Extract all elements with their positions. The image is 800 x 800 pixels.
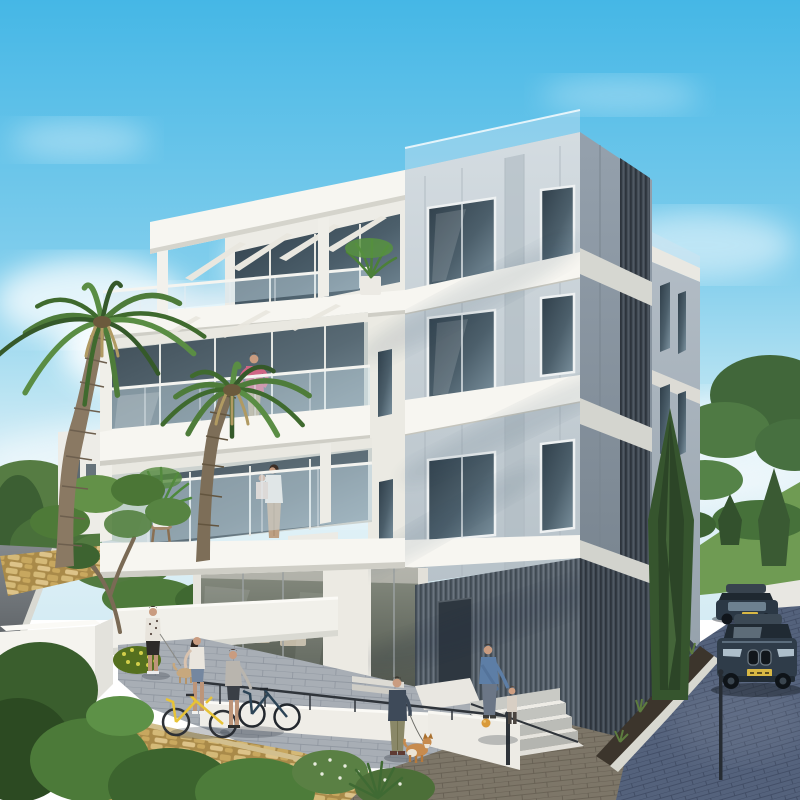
- pergola-column-1: [157, 250, 168, 320]
- column-2f-mid: [320, 443, 331, 524]
- orange-ball: [482, 719, 491, 728]
- render-canvas: 3D architectural rendering of a modern f…: [0, 0, 800, 800]
- window-3f-right: [541, 294, 574, 376]
- right-face: [580, 132, 652, 762]
- dark-panel: [505, 154, 524, 572]
- louvre-strip: [620, 158, 650, 582]
- pergola-column-2: [318, 217, 329, 298]
- palm-core: [223, 384, 241, 396]
- architectural-rendering: 3D architectural rendering of a modern f…: [0, 0, 800, 800]
- headlight-left: [723, 649, 742, 657]
- headlight-right: [777, 649, 794, 657]
- window-2f-right: [541, 440, 574, 532]
- palm-core: [93, 316, 111, 328]
